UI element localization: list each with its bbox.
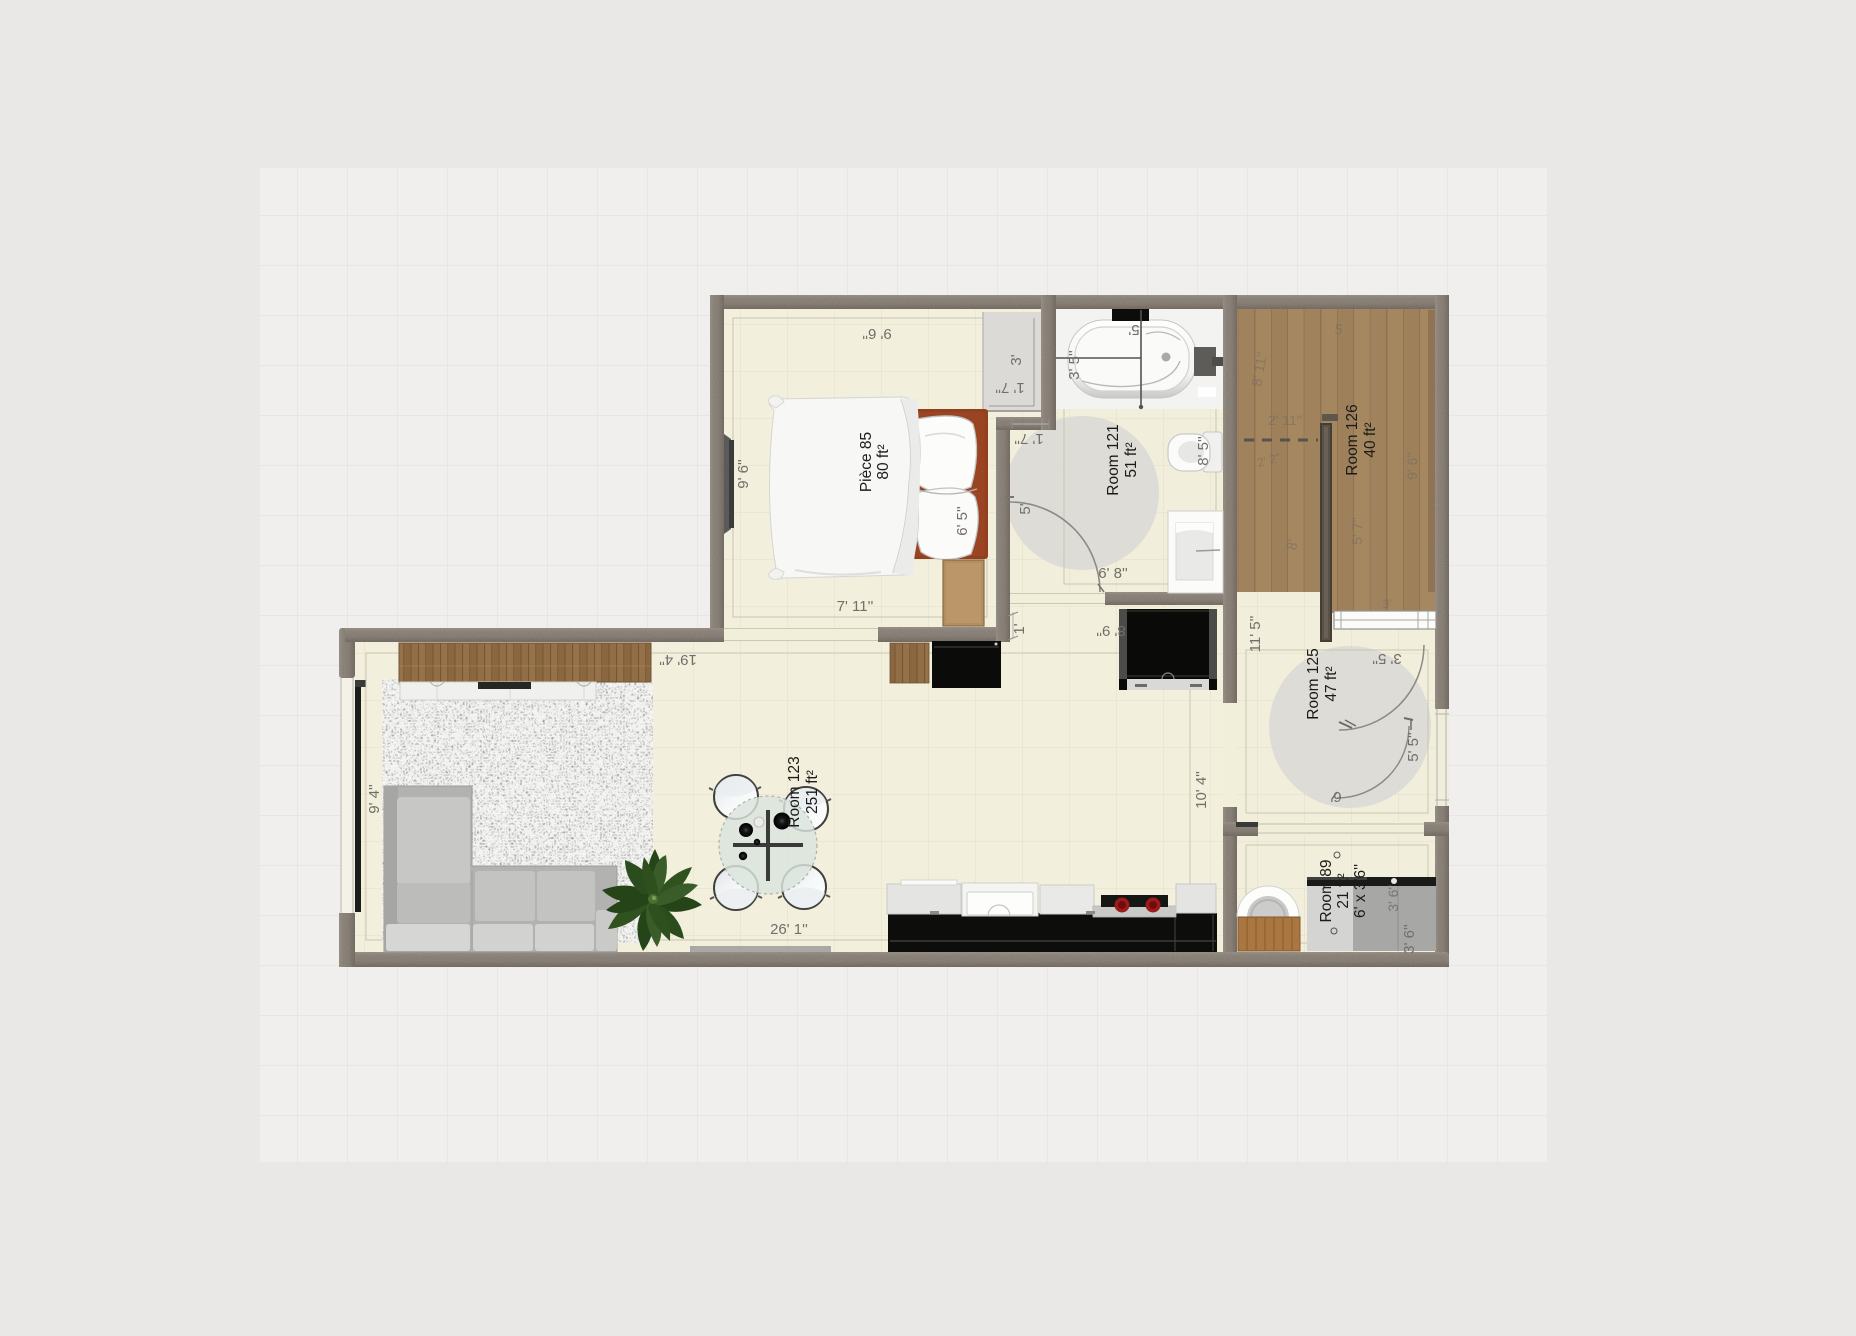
svg-text:19' 4'': 19' 4'' bbox=[659, 651, 697, 668]
svg-text:6' 8'': 6' 8'' bbox=[1098, 565, 1128, 582]
svg-text:6' 5'': 6' 5'' bbox=[954, 506, 971, 536]
svg-text:3' 6'': 3' 6'' bbox=[1385, 884, 1401, 911]
svg-text:Room 125: Room 125 bbox=[1305, 648, 1322, 720]
svg-text:Pièce 85: Pièce 85 bbox=[858, 432, 875, 492]
svg-text:8' 9'': 8' 9'' bbox=[1096, 622, 1126, 639]
svg-text:7' 11'': 7' 11'' bbox=[837, 598, 874, 615]
svg-text:251 ft²: 251 ft² bbox=[804, 770, 821, 814]
svg-text:11' 5'': 11' 5'' bbox=[1247, 616, 1264, 653]
svg-text:3' 6'': 3' 6'' bbox=[1401, 924, 1418, 954]
svg-text:6' x 3'6'': 6' x 3'6'' bbox=[1352, 864, 1369, 918]
svg-text:9' 6'': 9' 6'' bbox=[1404, 452, 1420, 479]
svg-text:5' 7'': 5' 7'' bbox=[1349, 517, 1365, 544]
svg-text:3': 3' bbox=[1383, 597, 1392, 611]
svg-text:2' 11'': 2' 11'' bbox=[1268, 412, 1302, 428]
svg-text:3' 5'': 3' 5'' bbox=[1372, 650, 1402, 667]
svg-text:Room 123: Room 123 bbox=[786, 756, 803, 828]
svg-text:21 ft²: 21 ft² bbox=[1335, 873, 1352, 908]
svg-text:1' 7'': 1' 7'' bbox=[1014, 430, 1044, 447]
svg-text:5': 5' bbox=[1017, 503, 1034, 514]
svg-text:9' 6'': 9' 6'' bbox=[862, 325, 892, 342]
svg-text:5' 5'': 5' 5'' bbox=[1405, 732, 1422, 762]
svg-text:3': 3' bbox=[1008, 354, 1025, 365]
svg-text:47 ft²: 47 ft² bbox=[1323, 666, 1340, 701]
svg-text:Room 89: Room 89 bbox=[1318, 860, 1335, 923]
svg-text:51 ft²: 51 ft² bbox=[1123, 442, 1140, 477]
svg-text:80 ft²: 80 ft² bbox=[875, 444, 892, 479]
svg-text:9' 6'': 9' 6'' bbox=[735, 459, 752, 489]
svg-text:10' 4'': 10' 4'' bbox=[1193, 771, 1210, 809]
svg-text:Room 121: Room 121 bbox=[1105, 424, 1122, 496]
svg-text:8' 5'': 8' 5'' bbox=[1195, 436, 1212, 466]
svg-text:3' 5'': 3' 5'' bbox=[1066, 350, 1083, 380]
svg-text:1' 7'': 1' 7'' bbox=[995, 379, 1025, 396]
svg-text:40 ft²: 40 ft² bbox=[1362, 422, 1379, 457]
svg-text:Room 126: Room 126 bbox=[1344, 404, 1361, 476]
svg-text:9' 4'': 9' 4'' bbox=[366, 784, 383, 814]
svg-text:1': 1' bbox=[1011, 623, 1028, 634]
svg-text:6': 6' bbox=[1330, 788, 1341, 805]
svg-text:26' 1'': 26' 1'' bbox=[770, 921, 808, 938]
svg-text:5': 5' bbox=[1128, 321, 1139, 338]
